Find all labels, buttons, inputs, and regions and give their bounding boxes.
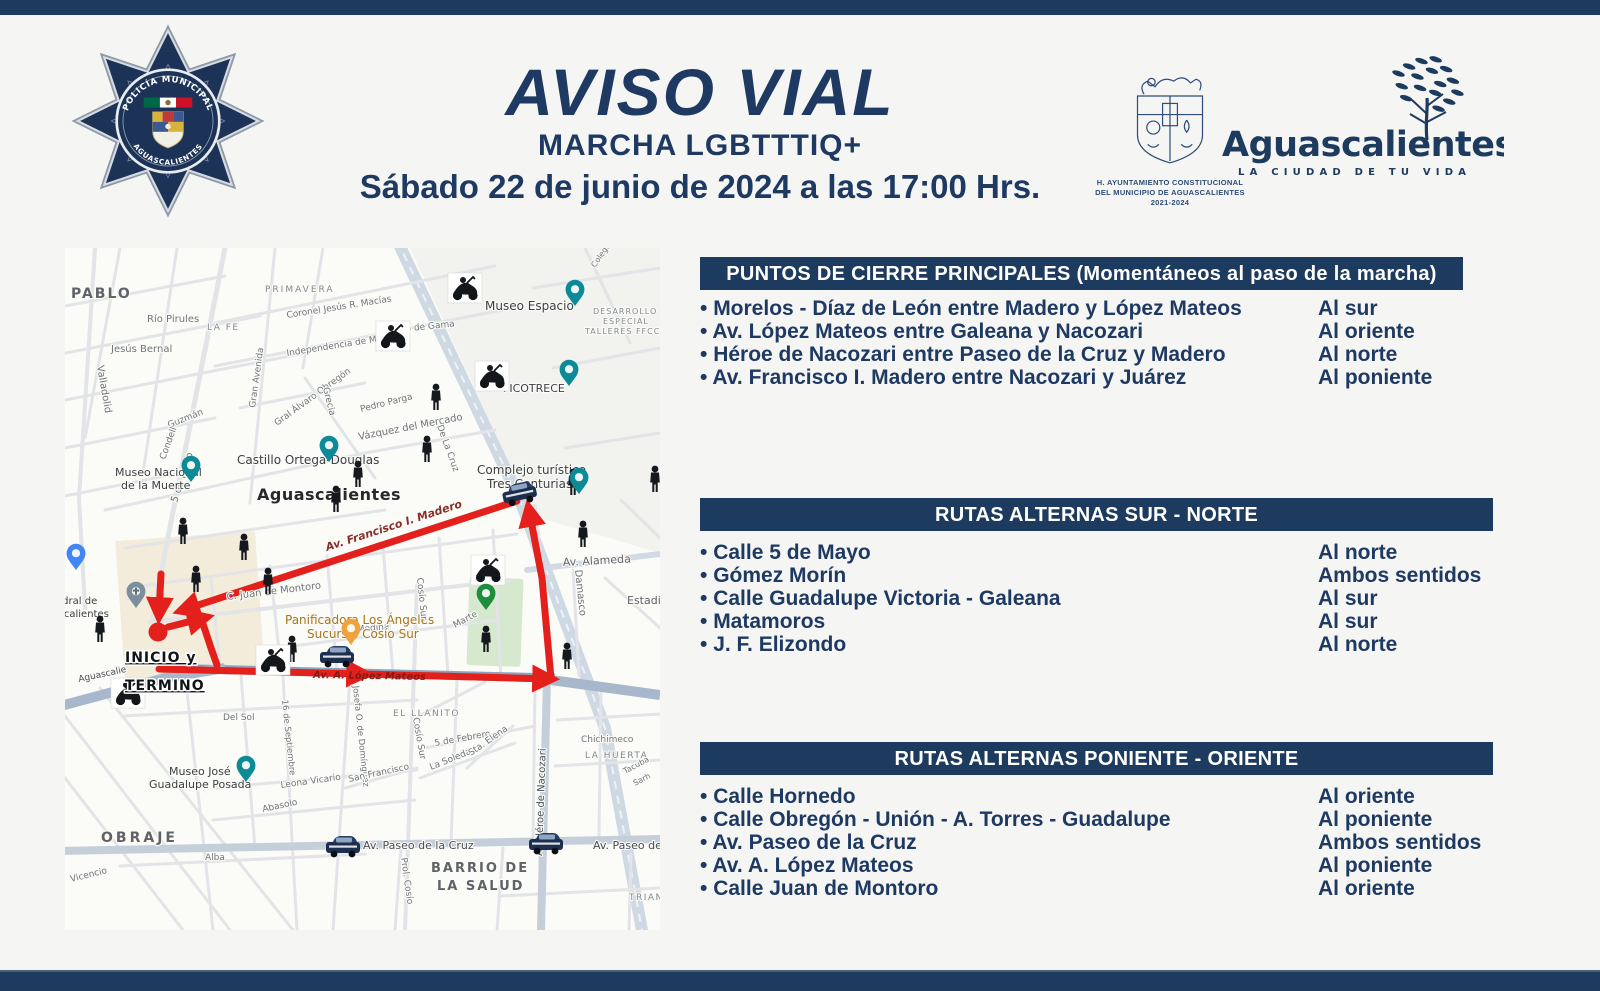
map-label: Aguascalientes	[257, 485, 401, 504]
city-logo-tagline: LA CIUDAD DE TU VIDA	[1238, 167, 1471, 178]
map-label: EL LLANITO	[393, 709, 460, 719]
police-motorcycle-icon	[376, 321, 410, 351]
map-label: Alba	[205, 853, 225, 863]
map-label: 16 de Septiembre	[279, 699, 297, 776]
route-segment	[159, 574, 161, 614]
map-label: Del Sol	[223, 713, 255, 723]
map-label: San Francisco	[348, 762, 411, 785]
closure-row: Av. Francisco I. Madero entre Nacozari y…	[700, 366, 1493, 389]
map-label: PABLO	[71, 286, 132, 302]
street-name: Calle Juan de Montoro	[700, 877, 938, 900]
direction: Ambos sentidos	[1318, 831, 1481, 854]
map-label: Estadio	[627, 594, 660, 607]
map-label: Av. Paseo de la Cruz	[363, 839, 474, 852]
map-label: Complejo turístico	[477, 463, 586, 477]
route-row: Calle 5 de Mayo Al norte	[700, 541, 1493, 564]
street-name: Calle Guadalupe Victoria - Galeana	[700, 587, 1061, 610]
route-map: Av. Francisco I. MaderoAv. A. López Mate…	[65, 248, 660, 930]
poniente-oriente-list: Calle Hornedo Al oriente Calle Obregón -…	[700, 785, 1493, 900]
police-officer-icon	[431, 384, 441, 410]
street-name: Morelos - Díaz de León entre Madero y Ló…	[700, 297, 1242, 320]
crest-caption-line3: 2021-2024	[1094, 198, 1246, 208]
direction: Al oriente	[1318, 320, 1415, 343]
street-name: Matamoros	[700, 610, 825, 633]
direction: Ambos sentidos	[1318, 564, 1481, 587]
section-header-sur-norte: RUTAS ALTERNAS SUR - NORTE	[700, 498, 1493, 531]
direction: Al norte	[1318, 541, 1397, 564]
route-row: Calle Guadalupe Victoria - Galeana Al su…	[700, 587, 1493, 610]
direction: Al poniente	[1318, 808, 1432, 831]
direction: Al sur	[1318, 610, 1378, 633]
start-end-label: TERMINO	[125, 678, 205, 694]
route-row: J. F. Elizondo Al norte	[700, 633, 1493, 656]
traffic-advisory-poster: POLICÍA MUNICIPAL AGUASCALIENTES AVISO V…	[0, 0, 1600, 991]
page-title: AVISO VIAL	[320, 58, 1080, 127]
direction: Al sur	[1318, 587, 1378, 610]
map-label: TALLERES FFCC	[584, 327, 660, 336]
top-border-bar	[0, 0, 1600, 15]
start-end-label: INICIO y	[125, 650, 197, 666]
direction: Al oriente	[1318, 877, 1415, 900]
map-pin-icon	[342, 619, 361, 645]
route-row: Calle Juan de Montoro Al oriente	[700, 877, 1493, 900]
map-label: Sarh	[632, 771, 652, 787]
sur-norte-list: Calle 5 de Mayo Al norte Gómez Morín Amb…	[700, 541, 1493, 656]
street-name: Gómez Morín	[700, 564, 846, 587]
route-row: Matamoros Al sur	[700, 610, 1493, 633]
street-name: Calle 5 de Mayo	[700, 541, 871, 564]
badge-shield-icon	[153, 112, 184, 148]
police-motorcycle-icon	[471, 555, 505, 585]
section-header-closures: PUNTOS DE CIERRE PRINCIPALES (Momentáneo…	[700, 257, 1463, 290]
header: AVISO VIAL MARCHA LGBTTTIQ+ Sábado 22 de…	[320, 58, 1080, 206]
street-name: Av. A. López Mateos	[700, 854, 914, 877]
map-label: Río Pirules	[147, 313, 199, 325]
street-name: Calle Obregón - Unión - A. Torres - Guad…	[700, 808, 1171, 831]
map-label: LA SALUD	[437, 879, 524, 894]
municipal-crest-icon	[1118, 70, 1222, 174]
route-row: Calle Hornedo Al oriente	[700, 785, 1493, 808]
route-row: Calle Obregón - Unión - A. Torres - Guad…	[700, 808, 1493, 831]
closure-row: Héroe de Nacozari entre Paseo de la Cruz…	[700, 343, 1493, 366]
municipal-police-badge-icon: POLICÍA MUNICIPAL AGUASCALIENTES	[68, 22, 268, 220]
map-label: ESPECIAL	[603, 317, 649, 326]
map-label: Valladolid	[94, 365, 113, 414]
start-point-dot	[149, 623, 168, 642]
map-label: Guadalupe Posada	[149, 778, 251, 791]
bottom-border-bar	[0, 970, 1600, 991]
map-label: FICOTRECE	[503, 382, 565, 395]
crest-caption: H. AYUNTAMIENTO CONSTITUCIONAL DEL MUNIC…	[1094, 178, 1246, 208]
map-label: BARRIO DE	[431, 861, 529, 876]
aguascalientes-city-logo: Aguascalientes LA CIUDAD DE TU VIDA	[1222, 56, 1504, 182]
direction: Al sur	[1318, 297, 1378, 320]
street-name: Av. Francisco I. Madero entre Nacozari y…	[700, 366, 1186, 389]
city-logo-name: Aguascalientes	[1222, 125, 1504, 165]
police-motorcycle-icon	[475, 361, 509, 391]
map-label: Vicencio	[69, 866, 108, 885]
street-name: Calle Hornedo	[700, 785, 856, 808]
direction: Al norte	[1318, 343, 1397, 366]
route-row: Av. Paseo de la Cruz Ambos sentidos	[700, 831, 1493, 854]
street-name: Héroe de Nacozari entre Paseo de la Cruz…	[700, 343, 1226, 366]
event-datetime: Sábado 22 de junio de 2024 a las 17:00 H…	[320, 168, 1080, 206]
direction: Al norte	[1318, 633, 1397, 656]
map-label: Gral Álvaro Obregón	[272, 365, 353, 429]
map-label: Sucursal Cosío Sur	[307, 627, 419, 641]
direction: Al poniente	[1318, 854, 1432, 877]
map-label: Jesús Bernal	[110, 343, 172, 355]
map-label: TRIANA	[628, 893, 660, 903]
street-name: J. F. Elizondo	[700, 633, 846, 656]
closure-list: Morelos - Díaz de León entre Madero y Ló…	[700, 297, 1493, 389]
route-row: Gómez Morín Ambos sentidos	[700, 564, 1493, 587]
direction: Al poniente	[1318, 366, 1432, 389]
map-label: DESARROLLO	[593, 307, 657, 316]
crest-caption-line2: DEL MUNICIPIO DE AGUASCALIENTES	[1094, 188, 1246, 198]
police-motorcycle-icon	[256, 645, 290, 675]
map-label: OBRAJE	[101, 830, 178, 846]
map-label: Av. Paseo de la C	[593, 839, 660, 852]
map-label: Chichimeco	[581, 735, 634, 745]
street-name: Av. López Mateos entre Galeana y Nacozar…	[700, 320, 1143, 343]
police-motorcycle-icon	[448, 273, 482, 303]
direction: Al oriente	[1318, 785, 1415, 808]
section-header-poniente-oriente: RUTAS ALTERNAS PONIENTE - ORIENTE	[700, 742, 1493, 775]
map-label: Condell	[158, 426, 179, 461]
map-label: De La Cruz	[434, 424, 460, 474]
map-label: Pedro Parga	[359, 392, 413, 415]
map-label: de la Muerte	[121, 479, 191, 492]
police-officer-icon	[422, 436, 432, 462]
closure-row: Av. López Mateos entre Galeana y Nacozar…	[700, 320, 1493, 343]
route-row: Av. A. López Mateos Al poniente	[700, 854, 1493, 877]
event-name: MARCHA LGBTTTIQ+	[320, 129, 1080, 163]
map-label: Museo José	[169, 765, 231, 778]
map-label: PRIMAVERA	[265, 285, 335, 295]
mexican-flag-icon	[144, 98, 193, 108]
closure-row: Morelos - Díaz de León entre Madero y Ló…	[700, 297, 1493, 320]
map-label: Catedral de	[65, 596, 97, 607]
map-label: Prol. Cosío	[398, 857, 415, 905]
route-street-label: Av. A. López Mateos	[312, 669, 426, 683]
street-name: Av. Paseo de la Cruz	[700, 831, 917, 854]
map-label: Museo Espacio	[485, 299, 574, 313]
map-label: Av. Alameda	[562, 552, 631, 569]
map-label: LA FE	[207, 323, 240, 333]
